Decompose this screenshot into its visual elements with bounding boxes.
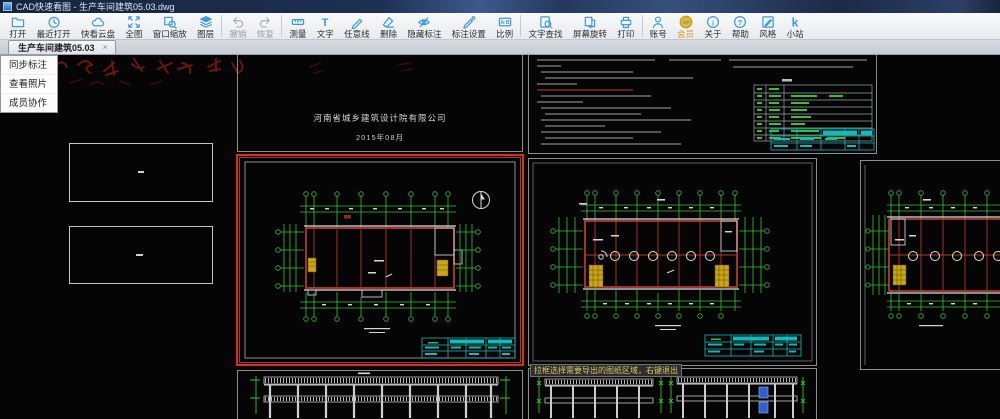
toolbar-label: 测量 [289,29,306,39]
toolbar-button-cloud[interactable]: 快看云盘 [76,14,120,40]
toolbar-label: 比例 [496,29,513,39]
selected-plan-sheet[interactable] [236,154,524,366]
notes-sheet-drawing [529,55,876,152]
toolbar-label: 快看云盘 [81,29,115,39]
tab-close-icon[interactable]: × [103,43,108,52]
toolbar-label: 最近打开 [37,29,71,39]
toolbar-button-layers[interactable]: 图层 [192,14,219,40]
toolbar-label: 标注设置 [452,29,486,39]
side-popup-menu: 同步标注 查看照片 成员协作 [0,55,58,113]
toolbar-label: 窗口缩放 [153,29,187,39]
eraser-icon [381,15,395,29]
toolbar-button-window-zoom[interactable]: 窗口缩放 [148,14,192,40]
cover-date: 2015年08月 [238,132,522,143]
toolbar-label: 关于 [705,29,722,39]
toolbar-label: 全图 [125,29,142,39]
tab-production-workshop[interactable]: 生产车间建筑05.03 × [8,40,116,54]
search-text-icon [539,15,553,29]
thumbnail-content [70,144,212,201]
svg-text:k: k [792,16,799,29]
svg-text:T: T [322,17,329,29]
toolbar-label: 小站 [787,29,804,39]
rotate-screen-icon [583,15,597,29]
cloud-icon [91,15,105,29]
style-icon [761,15,775,29]
toolbar-button-about[interactable]: i 关于 [699,14,726,40]
empty-sheet-thumbnail-2[interactable] [69,226,213,284]
notes-sheet[interactable] [528,55,877,154]
cover-sheet[interactable]: 河南省城乡建筑设计院有限公司 2015年08月 [237,55,523,152]
toolbar-button-recent[interactable]: 最近打开 [31,14,75,40]
layers-icon [199,15,213,29]
toolbar-button-print[interactable]: 打印 [612,14,639,40]
toolbar-label: 账号 [650,29,667,39]
toolbar-button-fullview[interactable]: 全图 [120,14,147,40]
vip-badge-icon: VIP [679,15,693,29]
toolbar-label: 帮助 [732,29,749,39]
printer-icon [619,15,633,29]
svg-text:?: ? [738,18,743,27]
toolbar-separator [281,15,282,37]
tab-label: 生产车间建筑05.03 [18,41,95,54]
toolbar-button-rotate-screen[interactable]: 屏幕旋转 [568,14,612,40]
ruler-icon [291,15,305,29]
toolbar-label: 图层 [197,29,214,39]
window-title: CAD快速看图 - 生产车间建筑05.03.dwg [16,0,175,13]
toolbar-label: 打开 [9,29,26,39]
info-icon: i [706,15,720,29]
drawing-canvas[interactable]: 同步标注 查看照片 成员协作 河南省城乡建筑设计院有限公司 2015年08月 [0,55,1000,419]
elevation-1-drawing [238,371,522,418]
toolbar-button-undo[interactable]: 撤销 [224,14,251,40]
toolbar-label: 会员 [677,29,694,39]
toolbar-button-find-text[interactable]: 文字查找 [523,14,567,40]
k-logo-icon: k [788,15,802,29]
toolbar-button-open[interactable]: 打开 [4,14,31,40]
toolbar-button-delete[interactable]: 删除 [375,14,402,40]
empty-sheet-thumbnail-1[interactable] [69,143,213,202]
toolbar-separator [221,15,222,37]
menu-item-sync-annotations[interactable]: 同步标注 [1,56,57,74]
toolbar-button-hide-annotations[interactable]: 隐藏标注 [402,14,446,40]
toolbar-button-measure[interactable]: 测量 [284,14,311,40]
company-name: 河南省城乡建筑设计院有限公司 [238,112,522,124]
clock-icon [47,15,61,29]
toolbar-button-scale[interactable]: A:B 比例 [491,14,518,40]
export-hint-tooltip: 拉框选择需要导出的图纸区域，右键退出 [530,364,682,377]
help-icon: ? [733,15,747,29]
toolbar-label: 风格 [759,29,776,39]
pencil-settings-icon [462,15,476,29]
toolbar-label: 恢复 [257,29,274,39]
menu-item-view-photos[interactable]: 查看照片 [1,74,57,93]
toolbar-button-help[interactable]: ? 帮助 [727,14,754,40]
plan-sheet-3[interactable] [860,160,1000,370]
toolbar-button-text[interactable]: T 文字 [312,14,339,40]
window-titlebar: CAD快速看图 - 生产车间建筑05.03.dwg [0,0,1000,13]
plan-2-drawing [529,159,816,365]
toolbar-button-style[interactable]: 风格 [754,14,781,40]
toolbar-label: 文字查找 [529,29,563,39]
toolbar-label: 删除 [380,29,397,39]
undo-icon [231,15,245,29]
svg-text:VIP: VIP [682,20,689,25]
toolbar-label: 文字 [317,29,334,39]
toolbar-button-freeline[interactable]: 任意线 [339,14,375,40]
toolbar-label: 屏幕旋转 [573,29,607,39]
svg-text:A:B: A:B [500,20,509,26]
open-folder-icon [11,15,25,29]
svg-text:i: i [712,18,714,27]
text-icon: T [318,15,332,29]
main-toolbar: 打开 最近打开 快看云盘 全图 窗口缩放 图层 撤销 恢复 测量 T 文字 任意… [0,13,1000,40]
selected-plan-drawing [238,156,522,364]
toolbar-button-membership[interactable]: VIP 会员 [672,14,699,40]
plan-sheet-2[interactable] [528,158,817,366]
app-icon [3,2,12,11]
elevation-sheet-1[interactable] [237,370,523,419]
toolbar-button-account[interactable]: 账号 [645,14,672,40]
toolbar-button-ksite[interactable]: k 小站 [781,14,808,40]
toolbar-label: 隐藏标注 [407,29,441,39]
plan-3-drawing [861,161,1000,369]
toolbar-button-annotation-settings[interactable]: 标注设置 [447,14,491,40]
toolbar-label: 撤销 [230,29,247,39]
toolbar-label: 任意线 [344,29,370,39]
toolbar-separator [642,15,643,37]
user-icon [651,15,665,29]
zoom-window-icon [163,15,177,29]
menu-item-member-collaboration[interactable]: 成员协作 [1,93,57,112]
thumbnail-content [70,227,212,283]
scale-ratio-icon: A:B [498,15,512,29]
document-tabbar: 生产车间建筑05.03 × [0,40,1000,55]
eye-off-icon [417,15,431,29]
toolbar-separator [520,15,521,37]
pencil-icon [350,15,364,29]
full-extent-icon [127,15,141,29]
redo-icon [258,15,272,29]
toolbar-label: 打印 [617,29,634,39]
toolbar-button-redo[interactable]: 恢复 [252,14,279,40]
